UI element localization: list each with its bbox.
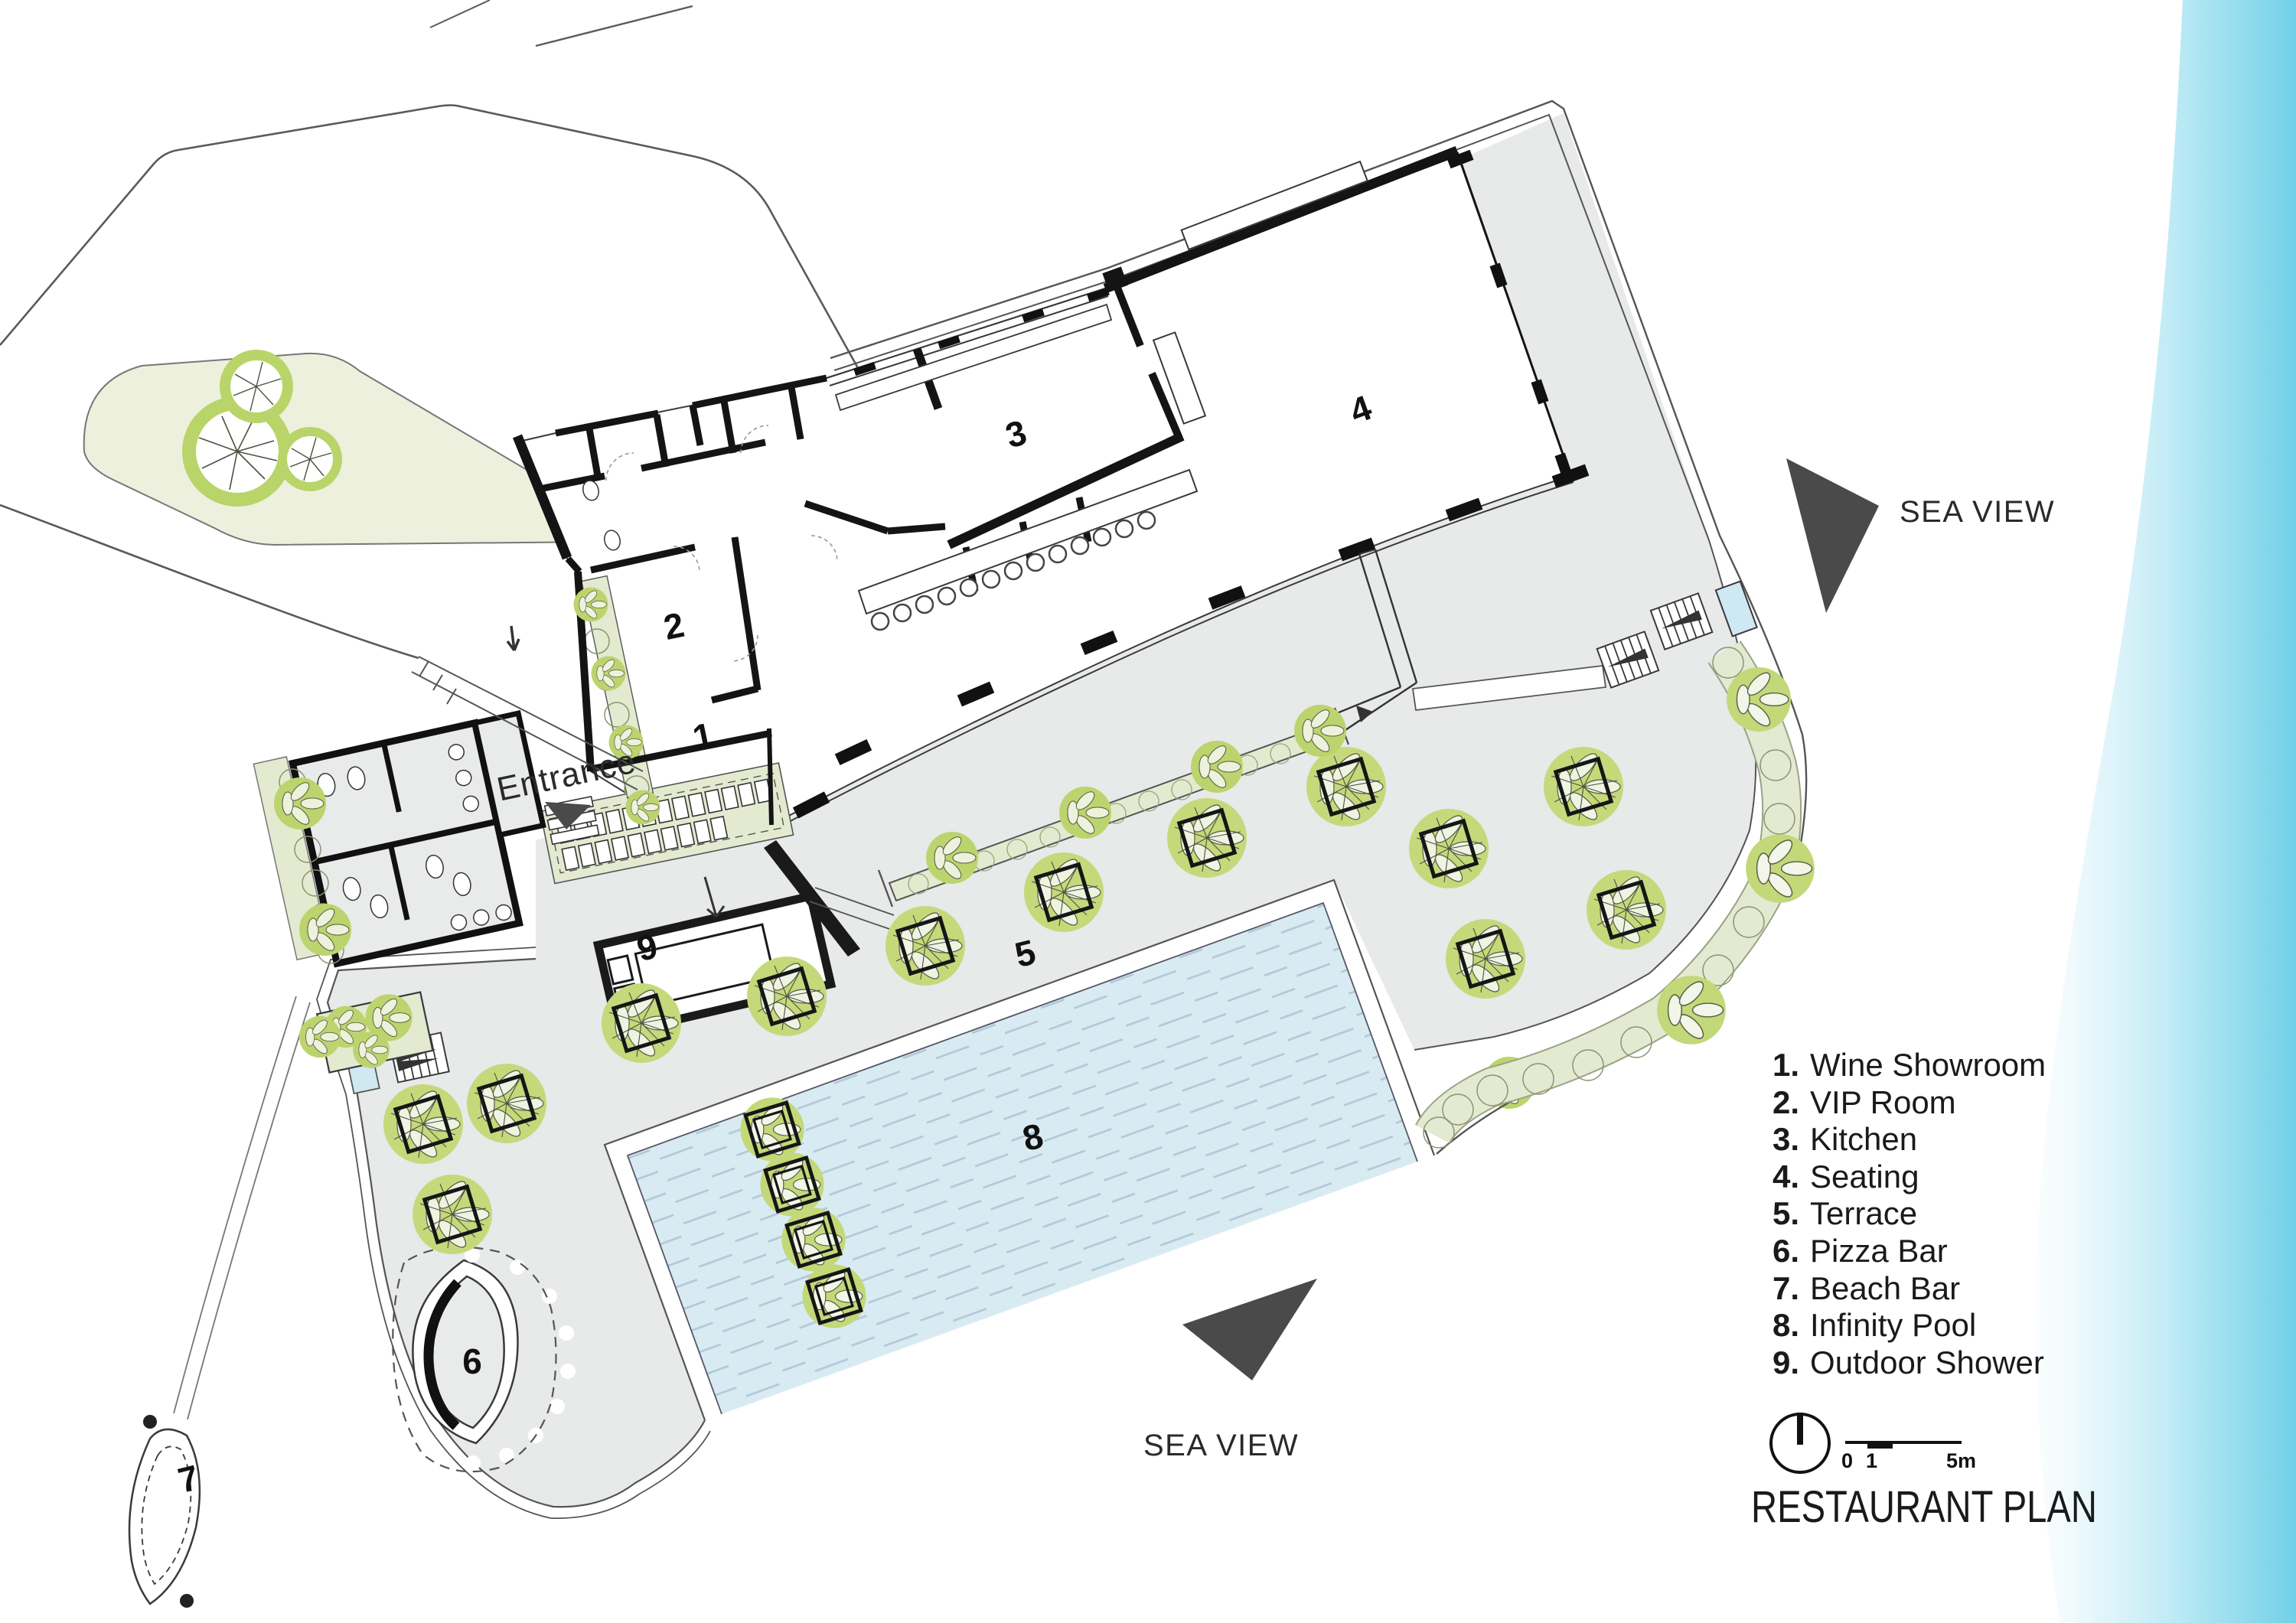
svg-text:RESTAURANT PLAN: RESTAURANT PLAN (1751, 1482, 2097, 1532)
svg-text:3.Kitchen: 3.Kitchen (1773, 1121, 1917, 1157)
svg-text:7.Beach Bar: 7.Beach Bar (1773, 1270, 1960, 1306)
svg-text:0: 0 (1841, 1449, 1853, 1472)
svg-text:2.VIP Room: 2.VIP Room (1773, 1084, 1956, 1120)
svg-text:5.Terrace: 5.Terrace (1773, 1195, 1917, 1231)
svg-text:1.Wine Showroom: 1.Wine Showroom (1773, 1047, 2046, 1083)
svg-text:8.Infinity Pool: 8.Infinity Pool (1773, 1307, 1976, 1343)
svg-text:9.Outdoor Shower: 9.Outdoor Shower (1773, 1344, 2044, 1380)
svg-text:5m: 5m (1946, 1449, 1976, 1472)
svg-text:6.Pizza Bar: 6.Pizza Bar (1773, 1233, 1948, 1269)
svg-text:SEA VIEW: SEA VIEW (1900, 495, 2055, 529)
svg-text:4.Seating: 4.Seating (1773, 1159, 1919, 1194)
svg-text:6: 6 (462, 1341, 482, 1381)
svg-text:SEA VIEW: SEA VIEW (1143, 1429, 1299, 1462)
svg-text:1: 1 (1866, 1449, 1877, 1472)
